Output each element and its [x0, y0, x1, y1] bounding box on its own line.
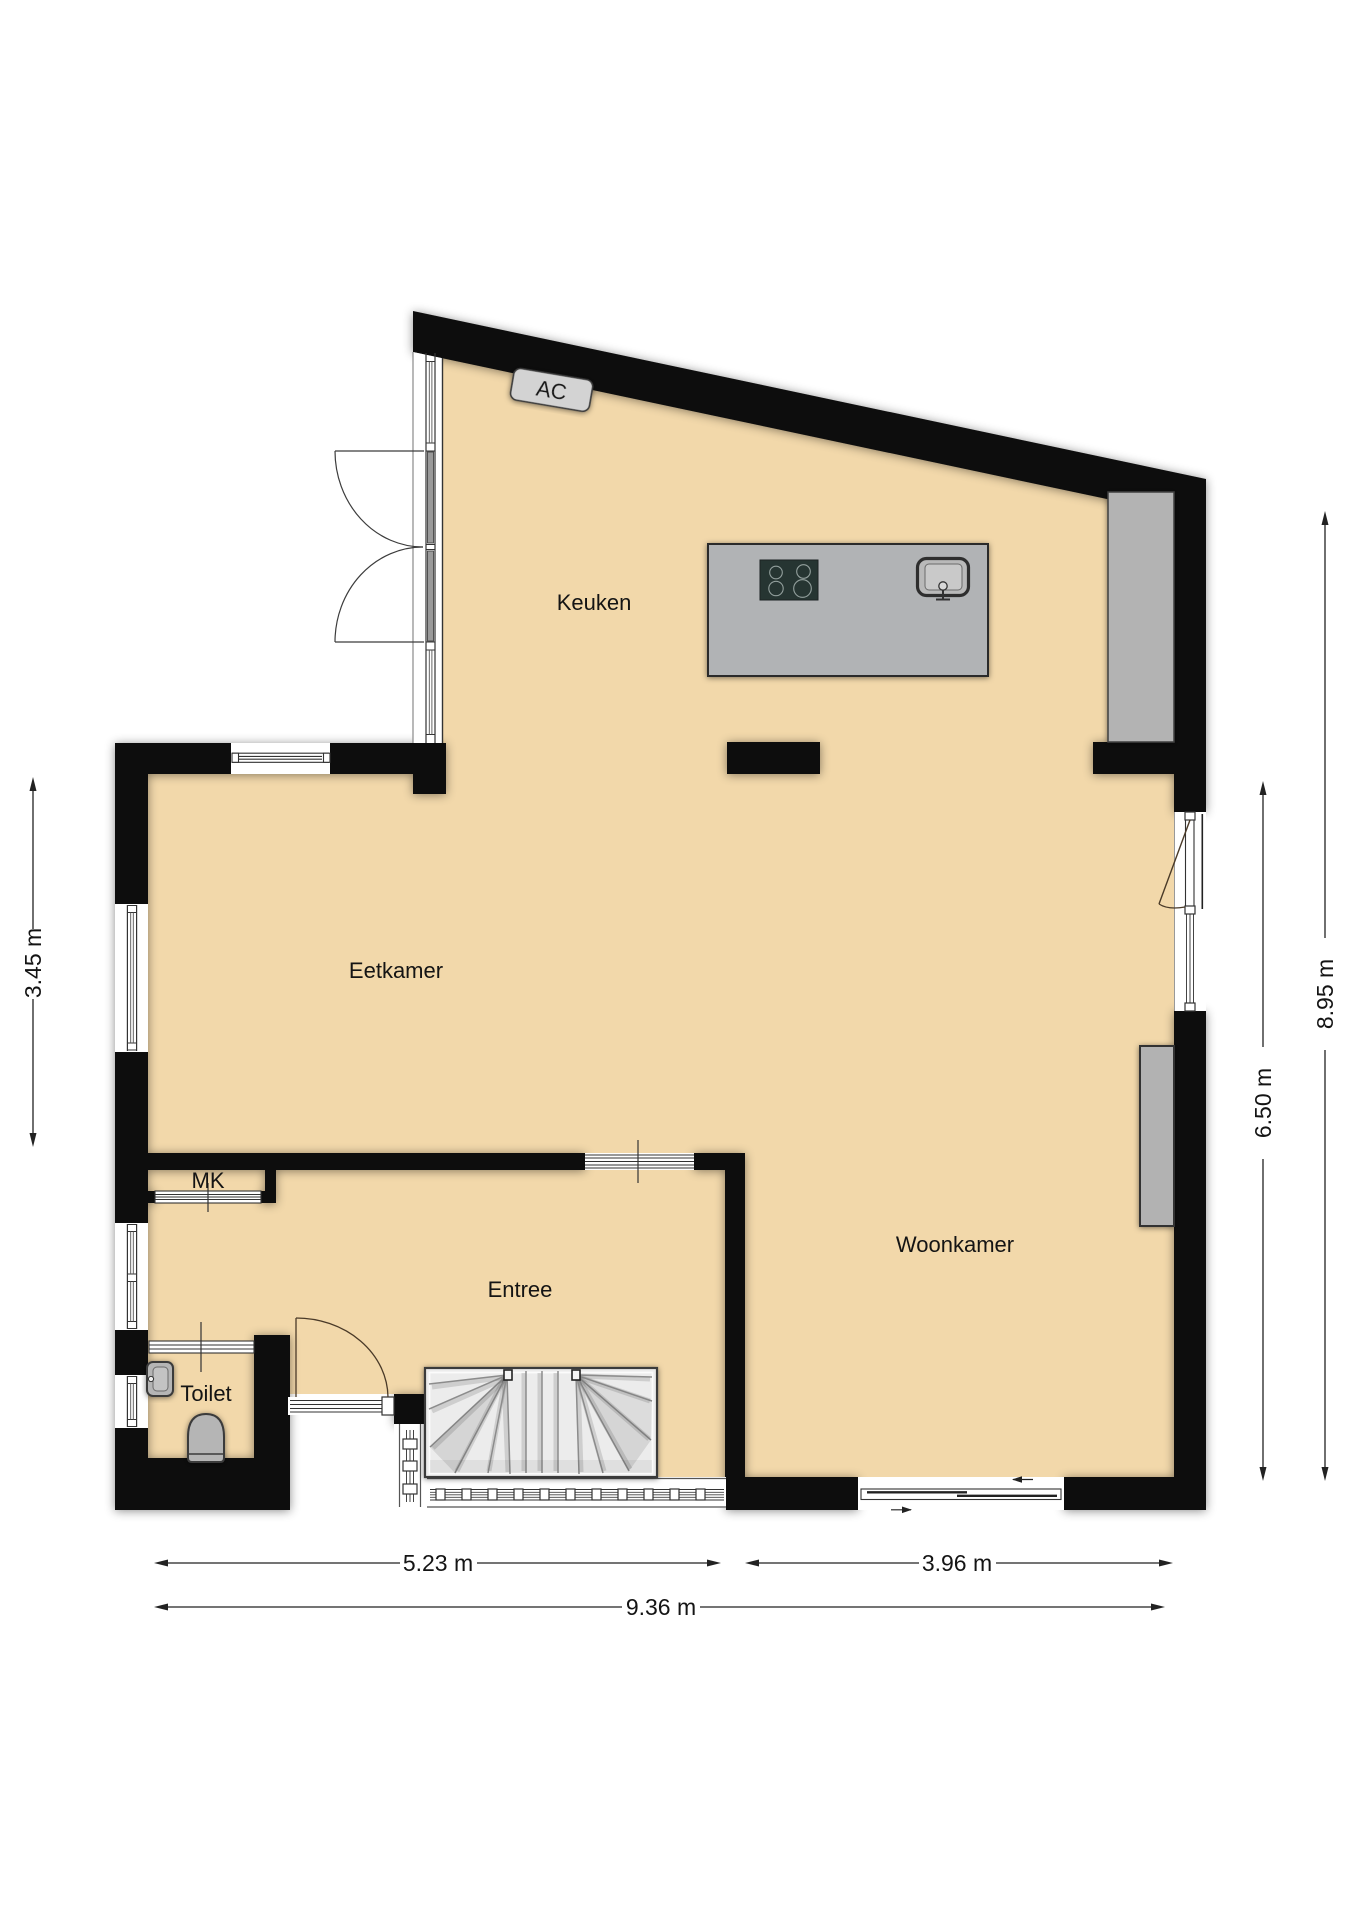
svg-text:Entree: Entree: [488, 1277, 553, 1302]
svg-text:Toilet: Toilet: [180, 1381, 231, 1406]
svg-text:Woonkamer: Woonkamer: [896, 1232, 1014, 1257]
svg-text:3.45 m: 3.45 m: [20, 928, 46, 998]
svg-text:3.96 m: 3.96 m: [922, 1550, 992, 1576]
svg-text:MK: MK: [192, 1168, 225, 1193]
svg-text:Eetkamer: Eetkamer: [349, 958, 443, 983]
svg-text:9.36 m: 9.36 m: [626, 1594, 696, 1620]
svg-text:6.50 m: 6.50 m: [1250, 1068, 1276, 1138]
svg-text:AC: AC: [534, 376, 568, 406]
svg-text:8.95 m: 8.95 m: [1312, 959, 1338, 1029]
svg-text:5.23 m: 5.23 m: [403, 1550, 473, 1576]
svg-text:Keuken: Keuken: [557, 590, 632, 615]
